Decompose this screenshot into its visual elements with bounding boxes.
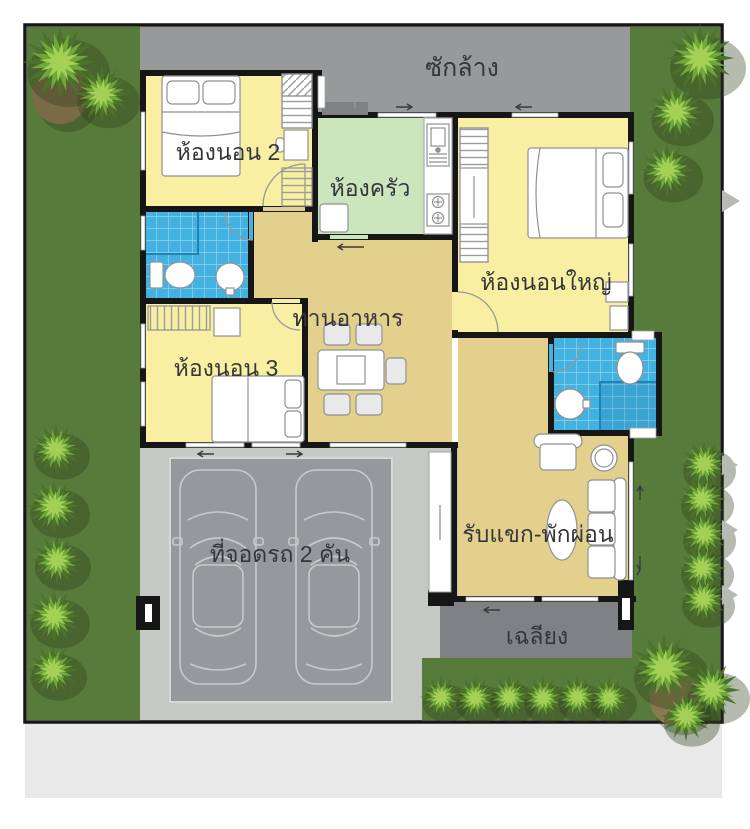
label-porch: เฉลียง xyxy=(506,623,568,649)
label-bedroom3: ห้องนอน 3 xyxy=(174,355,279,381)
floor-plan: ซักล้าง ห้องนอน 2 ห้องครัว ห้องนอนใหญ่ ท… xyxy=(0,0,750,829)
window xyxy=(630,428,656,438)
toilet xyxy=(150,262,195,288)
label-laundry: ซักล้าง xyxy=(425,54,499,82)
corner-window-slot xyxy=(622,598,630,620)
window xyxy=(542,597,598,601)
chair xyxy=(324,394,350,415)
chair xyxy=(386,358,406,384)
label-dining: ทานอาหาร xyxy=(293,305,404,331)
window xyxy=(141,112,145,170)
wardrobe-master xyxy=(460,128,488,262)
window xyxy=(378,113,436,117)
window xyxy=(629,462,633,580)
window xyxy=(466,597,534,601)
label-garage: ที่จอดรถ 2 คัน xyxy=(210,538,351,567)
window xyxy=(252,443,300,447)
window xyxy=(330,443,406,447)
gate-slot xyxy=(145,604,152,622)
bed-master xyxy=(528,148,628,238)
east-hall-floor xyxy=(458,338,548,448)
window xyxy=(186,443,244,447)
label-master-bedroom: ห้องนอนใหญ่ xyxy=(480,269,611,295)
window xyxy=(632,331,654,340)
laundry-step xyxy=(322,102,368,115)
label-kitchen: ห้องครัว xyxy=(330,175,411,201)
kitchen-counter xyxy=(424,118,452,234)
side-table xyxy=(591,445,617,471)
label-bedroom2: ห้องนอน 2 xyxy=(176,139,281,165)
window xyxy=(141,216,145,250)
desk-3 xyxy=(214,308,240,336)
hall-floor xyxy=(254,212,312,304)
refrigerator xyxy=(320,204,348,232)
armchair xyxy=(534,434,582,470)
window xyxy=(629,244,633,296)
label-living: รับแขก-พักผ่อน xyxy=(462,521,613,547)
toilet-2 xyxy=(616,342,644,384)
bed-3 xyxy=(212,376,304,442)
sidewalk-strip xyxy=(25,722,722,798)
wardrobe-3 xyxy=(148,306,210,330)
window xyxy=(629,142,633,194)
chair xyxy=(356,394,382,415)
window xyxy=(512,113,558,117)
window xyxy=(141,324,145,368)
window xyxy=(141,382,145,426)
